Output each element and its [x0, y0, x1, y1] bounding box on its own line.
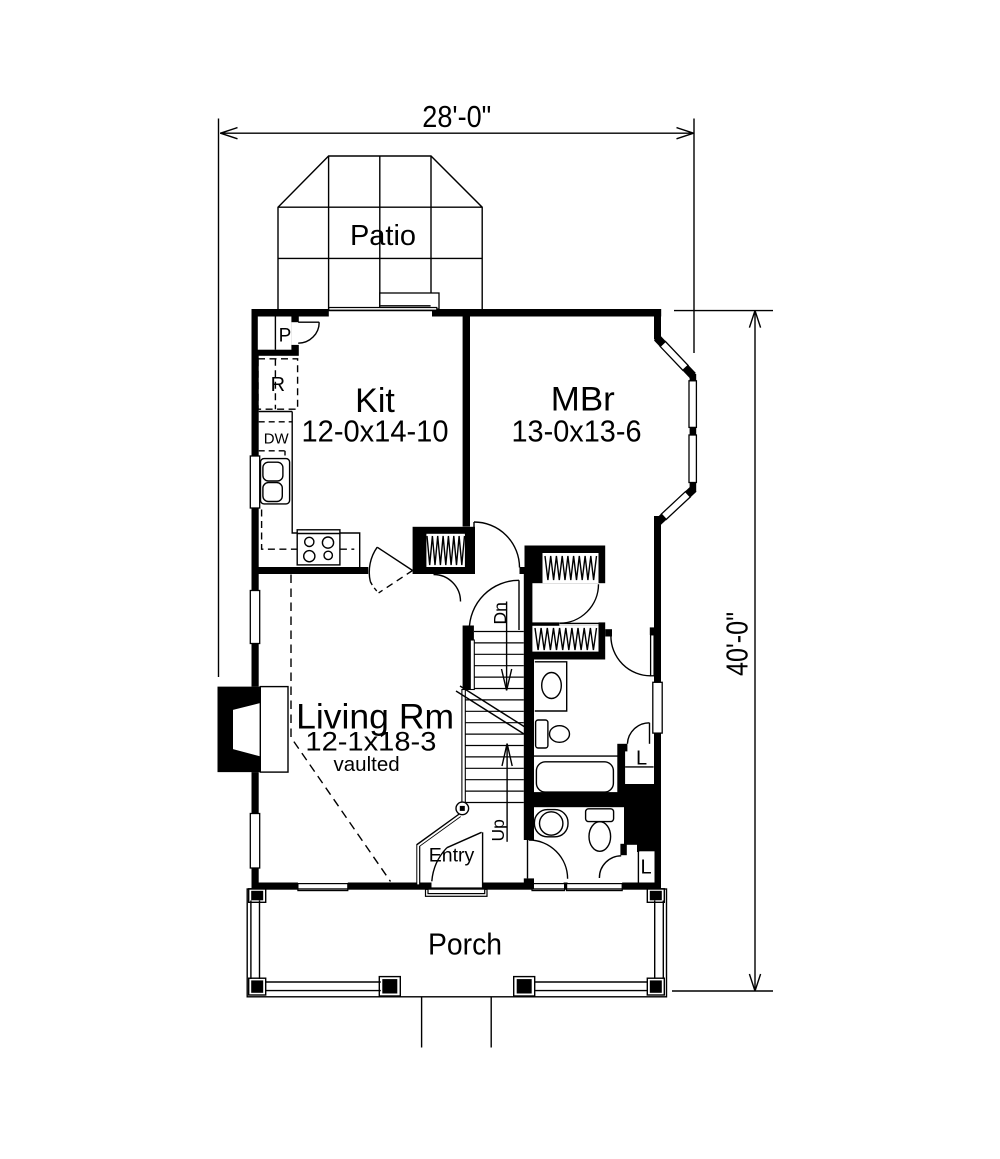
svg-text:MBr: MBr: [551, 381, 615, 419]
svg-text:P: P: [279, 326, 292, 347]
svg-text:L: L: [636, 748, 647, 770]
svg-text:28'-0": 28'-0": [422, 99, 491, 134]
svg-text:vaulted: vaulted: [334, 753, 400, 776]
svg-text:R: R: [271, 374, 285, 396]
svg-text:Porch: Porch: [428, 927, 502, 962]
svg-text:DW: DW: [264, 431, 290, 448]
svg-text:Entry: Entry: [429, 845, 475, 867]
svg-text:L: L: [640, 857, 651, 879]
svg-text:Patio: Patio: [350, 220, 416, 252]
svg-text:12-0x14-10: 12-0x14-10: [302, 415, 449, 449]
svg-text:12-1x18-3: 12-1x18-3: [305, 727, 436, 757]
svg-text:40'-0": 40'-0": [720, 612, 755, 676]
svg-text:Dn: Dn: [490, 602, 510, 624]
svg-text:Up: Up: [488, 819, 508, 841]
svg-text:13-0x13-6: 13-0x13-6: [512, 415, 642, 449]
